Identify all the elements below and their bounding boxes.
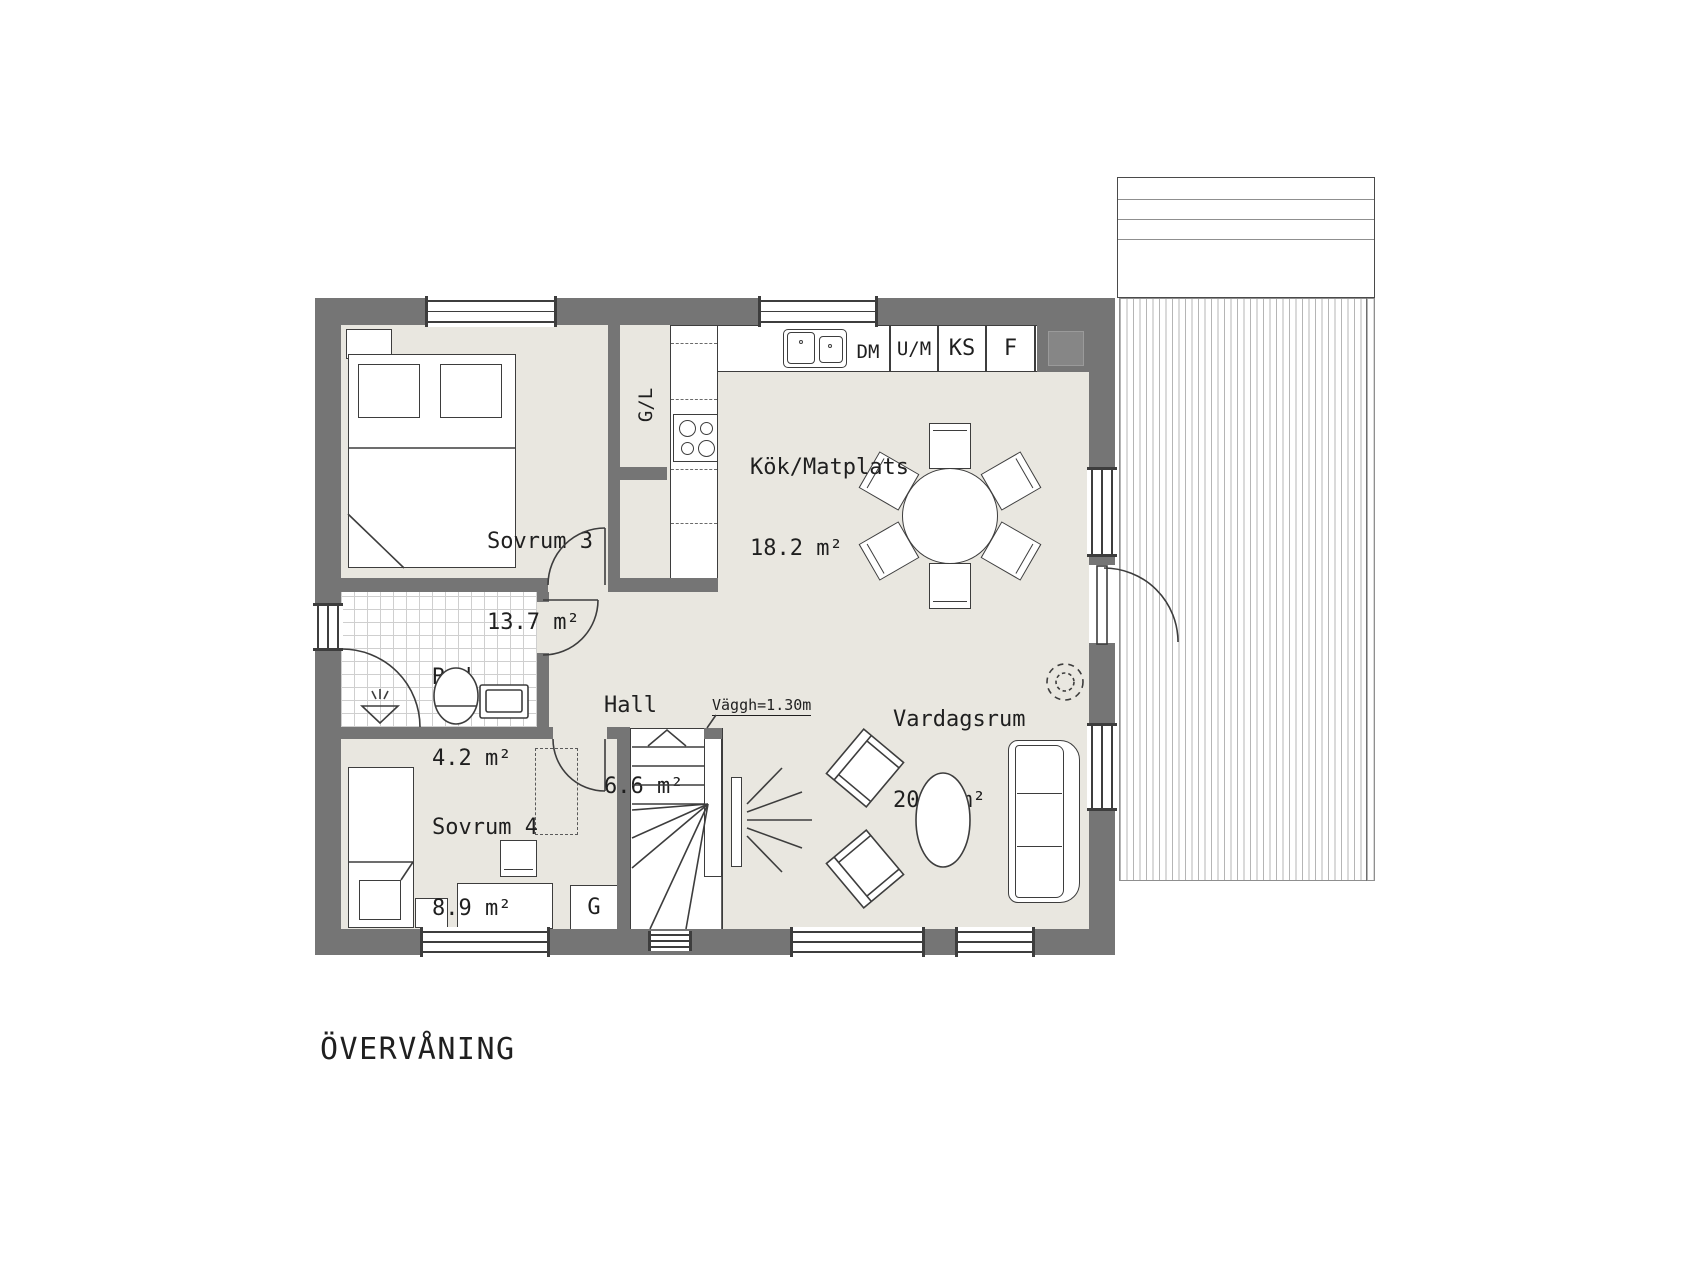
room-area: 6.6 m² <box>604 773 683 800</box>
sink-basin-right <box>819 336 843 363</box>
room-area: 8.9 m² <box>432 895 538 922</box>
balcony-deck <box>1119 298 1375 881</box>
room-name: Kök/Matplats <box>750 454 909 481</box>
room-name: Bad <box>432 664 511 691</box>
pergola-line <box>1118 239 1374 240</box>
faucet-dot <box>828 344 832 348</box>
room-label-vardagsrum: Vardagsrum 20.4 m² <box>893 652 1025 868</box>
wardrobe-outline-dashed <box>535 748 578 835</box>
dining-table <box>902 468 998 564</box>
room-area: 18.2 m² <box>750 535 909 562</box>
wall-closet-west <box>608 325 620 578</box>
appliance-fridge-freezer-label: KS <box>938 325 986 372</box>
window-right-kitchen <box>1087 467 1117 557</box>
wall-sovrum3-south-right <box>608 578 670 592</box>
room-label-hall: Hall 6.6 m² <box>604 638 683 854</box>
cabinet-dash-line <box>671 523 717 524</box>
cabinet-dash-line <box>671 343 717 344</box>
burner <box>700 422 713 435</box>
balcony-pergola <box>1117 177 1375 298</box>
pillow <box>358 364 420 418</box>
burner <box>698 440 715 457</box>
deck-edge-line <box>1366 298 1367 881</box>
wardrobe-g: G <box>570 885 618 930</box>
appliance-washer-label: U/M <box>890 325 938 372</box>
wall-counter-end <box>670 578 718 592</box>
dining-chair <box>929 563 971 609</box>
window-top-sovrum3 <box>425 296 557 327</box>
wall-height-annotation: Väggh=1.30m <box>712 696 811 716</box>
room-label-sovrum4: Sovrum 4 8.9 m² <box>432 760 538 976</box>
burner <box>679 420 696 437</box>
appliance-dishwasher-label: DM <box>848 338 888 366</box>
burner <box>681 442 694 455</box>
window-bottom-vardagsrum-1 <box>790 927 925 957</box>
room-label-kok: Kök/Matplats 18.2 m² <box>750 400 909 616</box>
stove <box>673 414 718 462</box>
appliance-freezer-label: F <box>986 325 1035 372</box>
page-title: ÖVERVÅNING <box>320 1036 516 1063</box>
window-bottom-stair <box>648 931 692 951</box>
half-wall-cap <box>704 728 722 739</box>
tv-unit <box>731 777 742 867</box>
dining-chair <box>929 423 971 469</box>
wall-closet-divider <box>608 467 667 480</box>
room-name: Hall <box>604 692 683 719</box>
pillow <box>440 364 502 418</box>
window-top-kitchen <box>758 296 878 327</box>
floor-plan: DM U/M KS F G <box>0 0 1707 1280</box>
pergola-line <box>1118 219 1374 220</box>
window-right-vardagsrum <box>1087 723 1117 811</box>
pillow <box>359 880 401 920</box>
window-left-bad <box>313 603 343 651</box>
room-name: Sovrum 4 <box>432 814 538 841</box>
closet-gl-label: G/L <box>635 375 657 435</box>
cabinet-dash-line <box>671 399 717 400</box>
window-bottom-vardagsrum-2 <box>955 927 1035 957</box>
room-name: Sovrum 3 <box>487 528 593 555</box>
sink-basin-left <box>787 332 815 364</box>
room-name: Vardagsrum <box>893 706 1025 733</box>
balcony-door-opening <box>1089 565 1115 643</box>
vent-shaft <box>1048 331 1084 366</box>
faucet-dot <box>799 340 803 344</box>
pergola-line <box>1118 199 1374 200</box>
room-area: 20.4 m² <box>893 787 1025 814</box>
cabinet-dash-line <box>671 469 717 470</box>
half-wall <box>704 728 722 877</box>
